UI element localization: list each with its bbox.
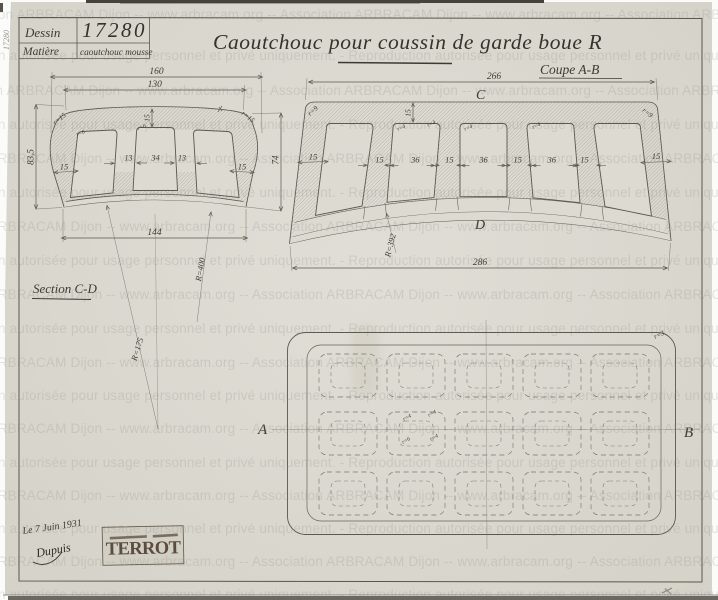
svg-text:TERROT: TERROT (106, 538, 182, 560)
svg-text:15: 15 (513, 155, 522, 165)
svg-text:144: 144 (147, 228, 162, 238)
svg-text:R=400: R=400 (193, 256, 207, 283)
svg-text:A: A (257, 422, 268, 438)
svg-text:13: 13 (178, 154, 186, 163)
svg-text:Dupuis: Dupuis (34, 540, 72, 560)
svg-text:Le 7 Juin 1931: Le 7 Juin 1931 (21, 518, 83, 537)
svg-text:C: C (476, 88, 486, 103)
svg-text:15: 15 (652, 151, 661, 161)
svg-text:D: D (474, 218, 485, 233)
svg-text:266: 266 (487, 72, 502, 82)
svg-text:17280: 17280 (2, 30, 11, 50)
svg-text:15: 15 (580, 155, 589, 165)
svg-text:Caoutchouc pour coussin de gar: Caoutchouc pour coussin de garde boue R (213, 30, 602, 54)
svg-text:15: 15 (60, 162, 69, 172)
svg-text:B: B (684, 425, 693, 441)
svg-text:r=4: r=4 (402, 412, 413, 422)
svg-text:Dessin: Dessin (24, 25, 60, 40)
svg-text:15: 15 (238, 162, 247, 172)
svg-text:15: 15 (143, 114, 152, 122)
svg-text:13: 13 (125, 154, 133, 163)
svg-text:R=175: R=175 (129, 336, 146, 363)
svg-text:15: 15 (309, 152, 318, 162)
svg-text:36: 36 (410, 155, 420, 165)
svg-text:34: 34 (150, 153, 160, 163)
svg-text:74: 74 (271, 155, 281, 165)
svg-text:R=392: R=392 (382, 232, 398, 259)
svg-text:36: 36 (478, 155, 488, 165)
svg-text:36: 36 (546, 155, 556, 165)
svg-text:15: 15 (445, 155, 454, 165)
svg-text:r=3: r=3 (652, 329, 666, 341)
svg-text:286: 286 (473, 258, 488, 268)
svg-text:130: 130 (148, 80, 163, 90)
svg-text:r=6: r=6 (401, 436, 412, 446)
svg-text:Coupe A-B: Coupe A-B (540, 62, 599, 77)
svg-text:15: 15 (375, 155, 384, 165)
svg-text:caoutchouc mousse: caoutchouc mousse (80, 48, 153, 58)
svg-text:160: 160 (149, 67, 164, 77)
svg-text:r=4: r=4 (427, 408, 438, 418)
svg-text:17280: 17280 (82, 18, 147, 42)
svg-text:r=4: r=4 (429, 432, 440, 442)
svg-text:15: 15 (404, 109, 413, 117)
svg-text:Matière: Matière (22, 46, 59, 58)
svg-text:Section C-D: Section C-D (33, 281, 98, 296)
svg-text:83,5: 83,5 (26, 149, 36, 165)
